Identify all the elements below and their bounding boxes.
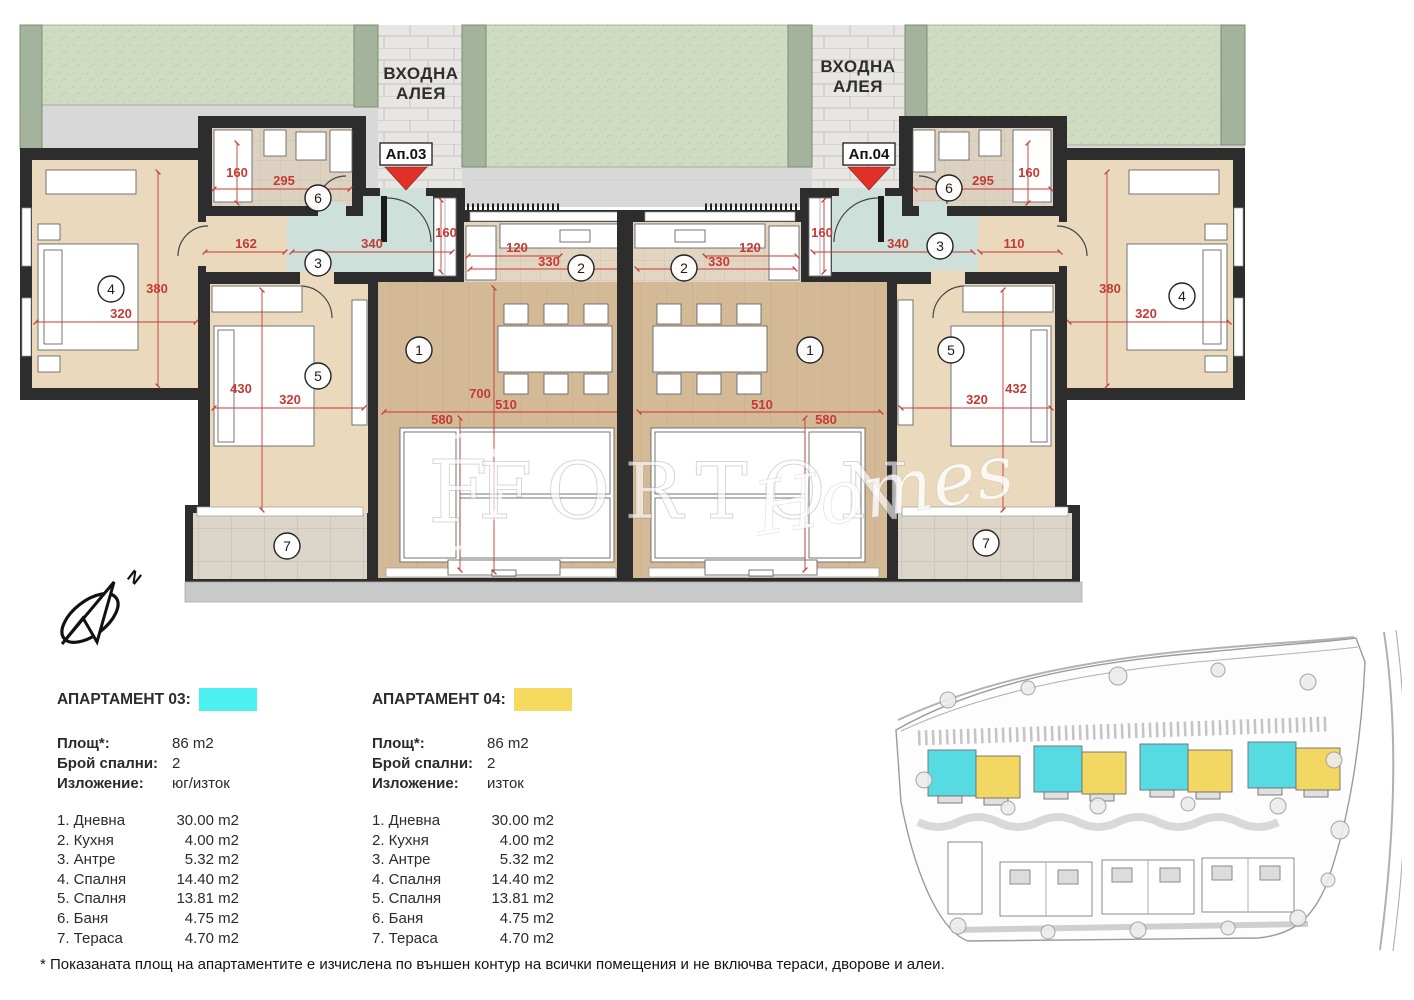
- room-name: 1. Дневна: [372, 811, 474, 831]
- room-row: 5. Спалня13.81 m2: [372, 889, 554, 909]
- room-row: 4. Спалня14.40 m2: [372, 870, 554, 890]
- room-name: 4. Спалня: [57, 870, 159, 890]
- room-row: 7. Тераса4.70 m2: [57, 929, 239, 949]
- room-row: 3. Антре5.32 m2: [57, 850, 239, 870]
- room-number: 5: [314, 368, 322, 384]
- site-road-right: [1380, 632, 1393, 950]
- dim-label: 380: [1099, 281, 1121, 296]
- info-value: юг/изток: [172, 774, 230, 794]
- room-name: 3. Антре: [57, 850, 159, 870]
- room-row: 4. Спалня14.40 m2: [57, 870, 239, 890]
- apartment-03-title: АПАРТАМЕНТ 03:: [57, 691, 191, 709]
- room-number: 3: [314, 255, 322, 271]
- room-area: 4.70 m2: [474, 929, 554, 949]
- room-area: 4.75 m2: [474, 909, 554, 929]
- site-plan: [888, 630, 1402, 952]
- dim-label: 510: [495, 397, 517, 412]
- entrance-alley-left: [378, 25, 462, 211]
- legend-apartment-04: АПАРТАМЕНТ 04: Площ*:86 m2 Брой спални:2…: [372, 688, 672, 948]
- apartment-04-title: АПАРТАМЕНТ 04:: [372, 691, 506, 709]
- info-value: изток: [487, 774, 524, 794]
- room-area: 13.81 m2: [159, 889, 239, 909]
- apartment-03-info: Площ*:86 m2 Брой спални:2 Изложение:юг/и…: [57, 734, 357, 794]
- dim-label: 160: [811, 225, 833, 240]
- dim-label: 160: [226, 165, 248, 180]
- room-number: 6: [314, 190, 322, 206]
- legend-title-row: АПАРТАМЕНТ 04:: [372, 688, 672, 711]
- lawn: [20, 25, 378, 105]
- pavement-strip: [185, 582, 1082, 602]
- room-number: 2: [680, 260, 688, 276]
- room-row: 6. Баня4.75 m2: [372, 909, 554, 929]
- room-number: 3: [936, 238, 944, 254]
- room-name: 1. Дневна: [57, 811, 159, 831]
- info-label: Площ*:: [372, 734, 487, 754]
- room-number: 2: [577, 260, 585, 276]
- dim-label: 380: [146, 281, 168, 296]
- room-number: 6: [945, 180, 953, 196]
- entrance-alley-label: АЛЕЯ: [833, 77, 883, 96]
- info-label: Площ*:: [57, 734, 172, 754]
- dim-label: 340: [887, 236, 909, 251]
- lawn: [462, 25, 812, 167]
- room-row: 3. Антре5.32 m2: [372, 850, 554, 870]
- dim-label: 320: [279, 392, 301, 407]
- area-footnote: * Показаната площ на апартаментите е изч…: [40, 956, 1240, 973]
- room-row: 2. Кухня4.00 m2: [372, 831, 554, 851]
- dim-label: 340: [361, 236, 383, 251]
- apartment-04-rooms: 1. Дневна30.00 m2 2. Кухня4.00 m2 3. Ант…: [372, 811, 672, 948]
- room-name: 6. Баня: [372, 909, 474, 929]
- room-area: 30.00 m2: [474, 811, 554, 831]
- dim-label: 160: [435, 225, 457, 240]
- dim-label: 160: [1018, 165, 1040, 180]
- room-area: 4.00 m2: [474, 831, 554, 851]
- dim-label: 120: [506, 240, 528, 255]
- room-number: 1: [806, 342, 814, 358]
- dim-label: 320: [966, 392, 988, 407]
- room-area: 14.40 m2: [159, 870, 239, 890]
- room-number: 4: [107, 281, 115, 297]
- dim-label: 110: [1004, 236, 1025, 251]
- dim-label: 580: [815, 412, 837, 427]
- room-name: 2. Кухня: [372, 831, 474, 851]
- room-area: 14.40 m2: [474, 870, 554, 890]
- info-label: Брой спални:: [372, 754, 487, 774]
- room-number: 7: [283, 538, 291, 554]
- room-name: 7. Тераса: [372, 929, 474, 949]
- info-label: Изложение:: [372, 774, 487, 794]
- room-number: 1: [415, 342, 423, 358]
- room-number: 7: [982, 535, 990, 551]
- dim-label: 430: [230, 381, 252, 396]
- dim-label: 580: [431, 412, 453, 427]
- dim-label: 330: [538, 254, 560, 269]
- apt-04-marker: Ап.04: [849, 146, 890, 163]
- info-value: 2: [172, 754, 180, 774]
- compass: N: [54, 566, 145, 652]
- dim-label: 330: [708, 254, 730, 269]
- room-row: 1. Дневна30.00 m2: [57, 811, 239, 831]
- entrance-alley-right: [812, 25, 905, 211]
- room-name: 3. Антре: [372, 850, 474, 870]
- room-number: 5: [947, 342, 955, 358]
- room-area: 4.70 m2: [159, 929, 239, 949]
- dim-label: 432: [1005, 381, 1027, 396]
- room-row: 5. Спалня13.81 m2: [57, 889, 239, 909]
- info-value: 86 m2: [172, 734, 214, 754]
- dim-label: 120: [739, 240, 761, 255]
- legend-apartment-03: АПАРТАМЕНТ 03: Площ*:86 m2 Брой спални:2…: [57, 688, 357, 948]
- room-row: 2. Кухня4.00 m2: [57, 831, 239, 851]
- entrance-alley-label: ВХОДНА: [383, 64, 458, 83]
- info-value: 2: [487, 754, 495, 774]
- apt-03-marker: Ап.03: [386, 146, 427, 163]
- room-area: 30.00 m2: [159, 811, 239, 831]
- dim-label: 162: [235, 236, 257, 251]
- dim-label: 295: [972, 173, 994, 188]
- room-area: 5.32 m2: [474, 850, 554, 870]
- apartment-03-rooms: 1. Дневна30.00 m2 2. Кухня4.00 m2 3. Ант…: [57, 811, 357, 948]
- info-value: 86 m2: [487, 734, 529, 754]
- page: { "plan": { "entrance": { "line1": "ВХОД…: [0, 0, 1414, 1000]
- dim-label: 510: [751, 397, 773, 412]
- room-name: 5. Спалня: [372, 889, 474, 909]
- room-name: 5. Спалня: [57, 889, 159, 909]
- room-row: 1. Дневна30.00 m2: [372, 811, 554, 831]
- room-area: 5.32 m2: [159, 850, 239, 870]
- dim-label: 295: [273, 173, 295, 188]
- room-area: 4.75 m2: [159, 909, 239, 929]
- room-number: 4: [1178, 288, 1186, 304]
- room-name: 7. Тераса: [57, 929, 159, 949]
- dim-label: 320: [1135, 306, 1157, 321]
- room-row: 6. Баня4.75 m2: [57, 909, 239, 929]
- room-name: 2. Кухня: [57, 831, 159, 851]
- room-area: 4.00 m2: [159, 831, 239, 851]
- entrance-alley-label: ВХОДНА: [820, 57, 895, 76]
- info-label: Изложение:: [57, 774, 172, 794]
- dim-label: 320: [110, 306, 132, 321]
- room-name: 6. Баня: [57, 909, 159, 929]
- entrance-alley-label: АЛЕЯ: [396, 84, 446, 103]
- legend-title-row: АПАРТАМЕНТ 03:: [57, 688, 357, 711]
- room-name: 4. Спалня: [372, 870, 474, 890]
- info-label: Брой спални:: [57, 754, 172, 774]
- compass-north-label: N: [124, 566, 145, 589]
- apartment-04-info: Площ*:86 m2 Брой спални:2 Изложение:изто…: [372, 734, 672, 794]
- room-area: 13.81 m2: [474, 889, 554, 909]
- room-row: 7. Тераса4.70 m2: [372, 929, 554, 949]
- apartment-03-color-swatch: [199, 688, 257, 711]
- apartment-04-color-swatch: [514, 688, 572, 711]
- floor-plan: ВХОДНА АЛЕЯ ВХОДНА АЛЕЯ Ап.03 Ап.04 160 …: [0, 0, 1414, 665]
- dim-label: 700: [469, 386, 491, 401]
